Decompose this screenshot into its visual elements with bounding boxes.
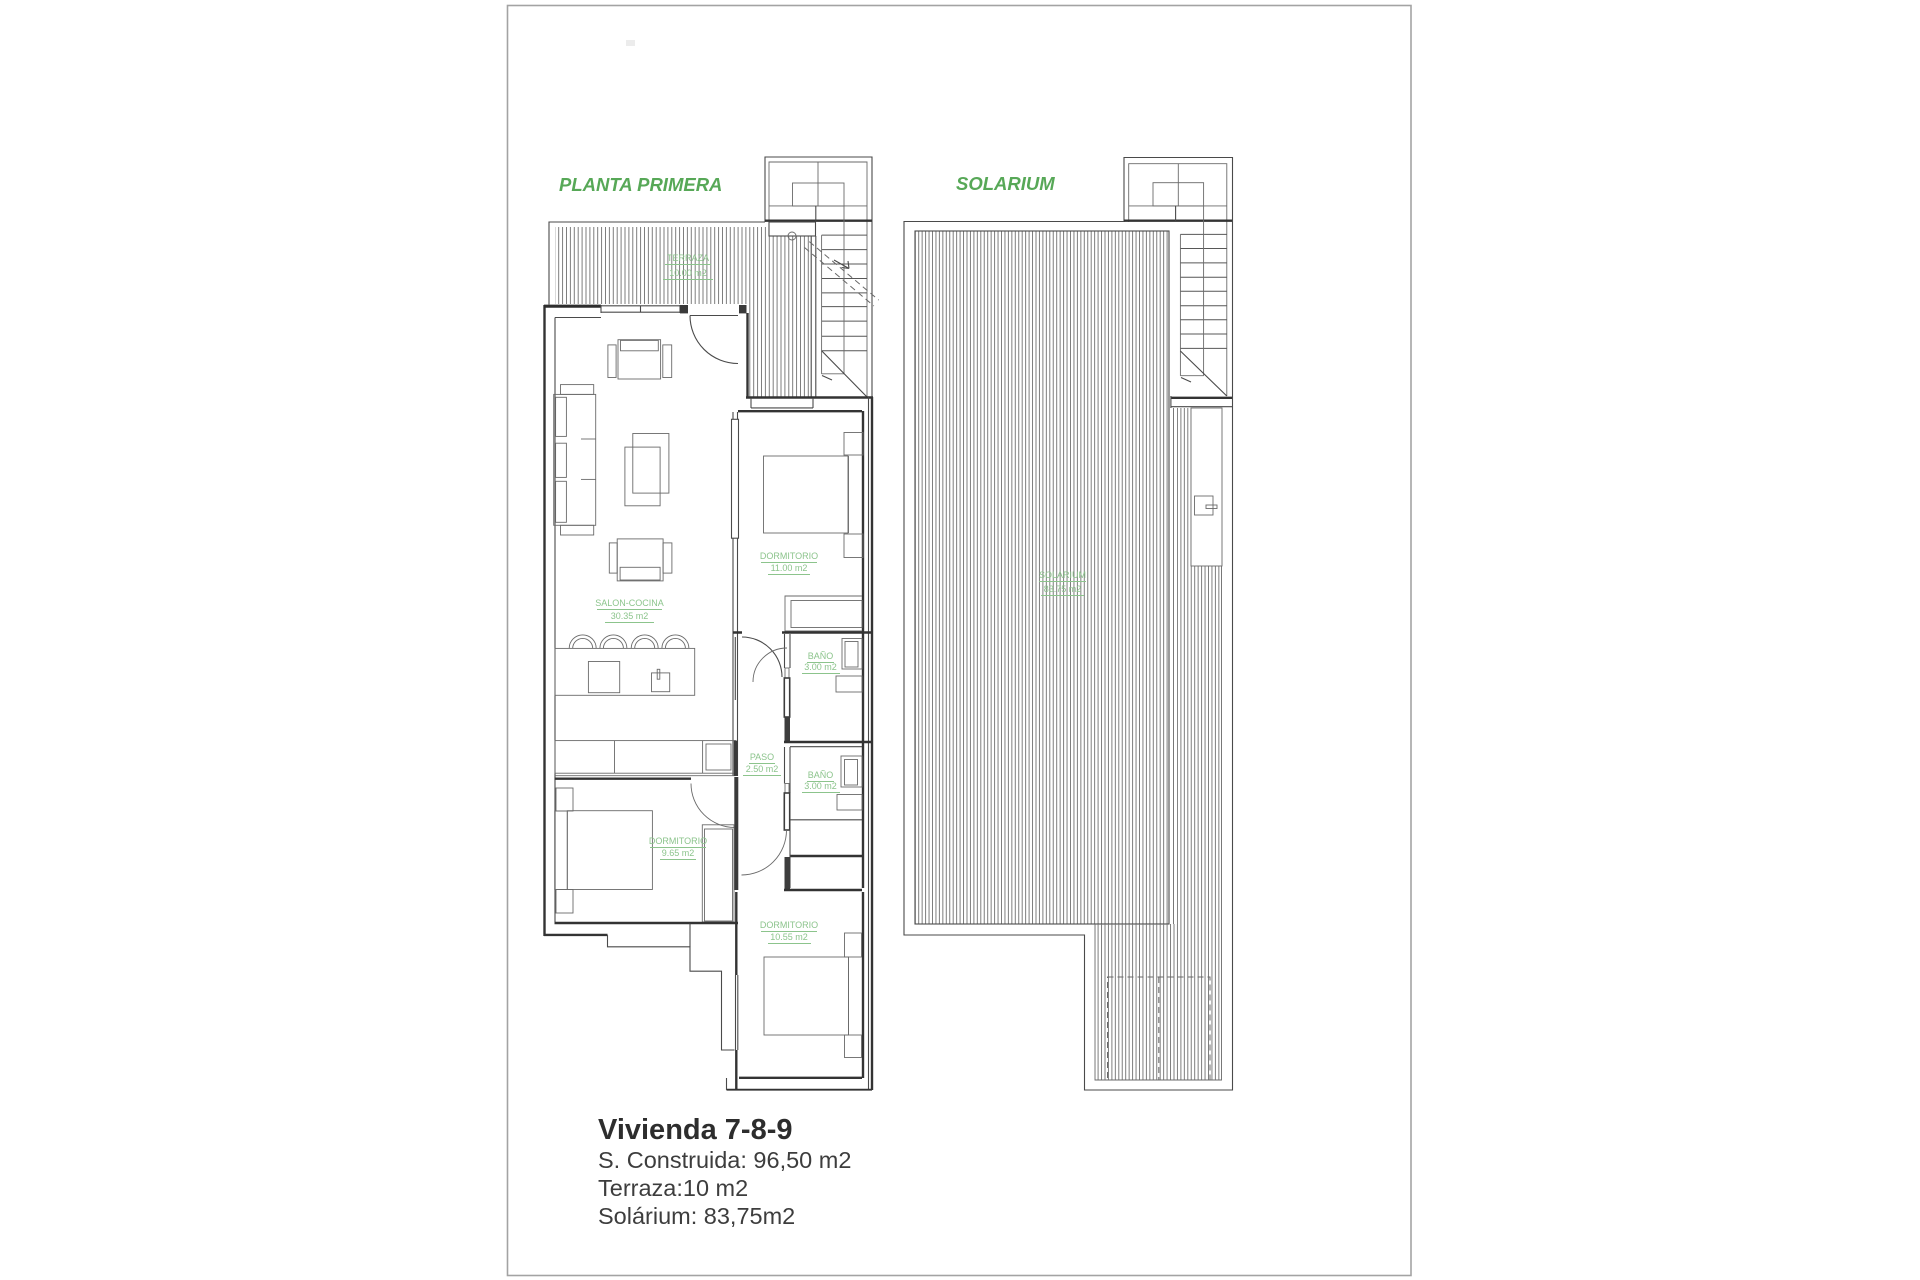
svg-text:TERRAZA: TERRAZA: [667, 253, 709, 263]
svg-text:DORMITORIO: DORMITORIO: [760, 920, 818, 930]
svg-text:SALON-COCINA: SALON-COCINA: [595, 598, 664, 608]
svg-text:83.75 m2: 83.75 m2: [1044, 584, 1082, 594]
svg-text:30.35 m2: 30.35 m2: [611, 611, 649, 621]
svg-text:Solárium: 83,75m2: Solárium: 83,75m2: [598, 1203, 795, 1229]
svg-text:2.50 m2: 2.50 m2: [746, 764, 779, 774]
svg-text:PASO: PASO: [750, 752, 774, 762]
svg-text:10.55 m2: 10.55 m2: [770, 932, 808, 942]
svg-text:DORMITORIO: DORMITORIO: [760, 551, 818, 561]
svg-text:11.00 m2: 11.00 m2: [771, 563, 808, 573]
svg-text:DORMITORIO: DORMITORIO: [649, 836, 707, 846]
svg-text:SOLARIUM: SOLARIUM: [956, 173, 1055, 194]
svg-text:BAÑO: BAÑO: [808, 770, 834, 780]
svg-text:3.00 m2: 3.00 m2: [804, 662, 837, 672]
svg-text:PLANTA PRIMERA: PLANTA PRIMERA: [559, 174, 722, 195]
svg-text:BAÑO: BAÑO: [808, 651, 834, 661]
svg-text:Terraza:10 m2: Terraza:10 m2: [598, 1175, 748, 1201]
svg-text:Vivienda 7-8-9: Vivienda 7-8-9: [598, 1114, 793, 1146]
svg-text:3.00 m2: 3.00 m2: [804, 781, 837, 791]
svg-text:10.00 m2: 10.00 m2: [669, 268, 707, 278]
svg-text:SOLARIUM: SOLARIUM: [1039, 570, 1086, 580]
svg-text:9.65 m2: 9.65 m2: [662, 848, 695, 858]
svg-text:S. Construida: 96,50 m2: S. Construida: 96,50 m2: [598, 1147, 851, 1173]
